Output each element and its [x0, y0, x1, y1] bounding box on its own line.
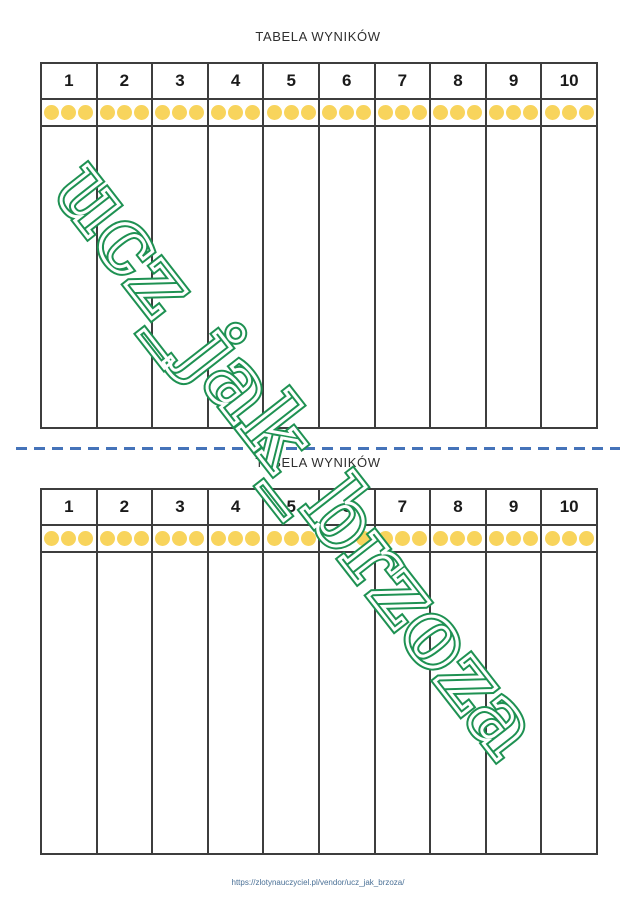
score-column-cell — [41, 552, 97, 854]
score-column-cell — [152, 552, 208, 854]
dots-group — [487, 105, 541, 120]
dots-cell — [41, 525, 97, 552]
score-column-cell — [208, 552, 264, 854]
score-column-cell — [263, 552, 319, 854]
score-dot — [562, 531, 577, 546]
dots-group — [431, 105, 485, 120]
dots-cell — [319, 525, 375, 552]
score-dot — [545, 531, 560, 546]
column-header: 10 — [541, 489, 597, 525]
score-dot — [523, 531, 538, 546]
score-column-cell — [41, 126, 97, 428]
dots-group — [431, 531, 485, 546]
dots-cell — [486, 99, 542, 126]
column-header: 2 — [97, 63, 153, 99]
score-dot — [100, 531, 115, 546]
score-dot — [211, 105, 226, 120]
column-header: 8 — [430, 489, 486, 525]
dots-group — [98, 531, 152, 546]
dots-group — [320, 531, 374, 546]
score-dot — [506, 531, 521, 546]
dots-row — [41, 525, 597, 552]
dots-group — [264, 105, 318, 120]
score-column-cell — [152, 126, 208, 428]
score-dot — [284, 105, 299, 120]
score-dot — [339, 105, 354, 120]
score-dot — [267, 531, 282, 546]
column-header: 6 — [319, 63, 375, 99]
score-dot — [134, 531, 149, 546]
dots-cell — [97, 99, 153, 126]
score-dot — [44, 531, 59, 546]
dots-cell — [319, 99, 375, 126]
column-header: 9 — [486, 63, 542, 99]
dots-cell — [208, 525, 264, 552]
column-header: 4 — [208, 63, 264, 99]
dots-group — [376, 531, 430, 546]
score-table: 12345678910 — [40, 488, 598, 855]
dots-group — [320, 105, 374, 120]
score-dot — [562, 105, 577, 120]
dots-cell — [208, 99, 264, 126]
score-column-cell — [430, 552, 486, 854]
score-column-cell — [541, 552, 597, 854]
dots-cell — [541, 525, 597, 552]
cut-line-divider — [16, 447, 620, 450]
score-dot — [78, 531, 93, 546]
dots-group — [209, 531, 263, 546]
dots-group — [153, 105, 207, 120]
score-dot — [322, 531, 337, 546]
score-dot — [117, 105, 132, 120]
score-column-cell — [97, 552, 153, 854]
dots-group — [542, 531, 596, 546]
score-dot — [134, 105, 149, 120]
column-header: 1 — [41, 63, 97, 99]
dots-cell — [263, 525, 319, 552]
dots-group — [264, 531, 318, 546]
dots-cell — [486, 525, 542, 552]
score-dot — [228, 105, 243, 120]
column-header: 5 — [263, 63, 319, 99]
score-column-cell — [319, 126, 375, 428]
column-header: 2 — [97, 489, 153, 525]
score-dot — [301, 531, 316, 546]
column-header: 1 — [41, 489, 97, 525]
score-dot — [78, 105, 93, 120]
score-dot — [412, 531, 427, 546]
score-dot — [489, 105, 504, 120]
score-dot — [301, 105, 316, 120]
dots-group — [42, 531, 96, 546]
score-dot — [467, 531, 482, 546]
score-dot — [395, 531, 410, 546]
score-dot — [117, 531, 132, 546]
dots-group — [209, 105, 263, 120]
score-entry-row — [41, 552, 597, 854]
score-dot — [155, 105, 170, 120]
footer-url-link[interactable]: https://zlotynauczyciel.pl/vendor/ucz_ja… — [0, 878, 636, 887]
score-dot — [523, 105, 538, 120]
score-column-cell — [375, 126, 431, 428]
dots-cell — [430, 99, 486, 126]
score-dot — [211, 531, 226, 546]
table-header-row: 12345678910 — [41, 63, 597, 99]
score-dot — [267, 105, 282, 120]
dots-cell — [375, 525, 431, 552]
score-dot — [172, 531, 187, 546]
score-dot — [284, 531, 299, 546]
score-dot — [100, 105, 115, 120]
dots-group — [42, 105, 96, 120]
score-dot — [61, 105, 76, 120]
column-header: 9 — [486, 489, 542, 525]
score-dot — [467, 105, 482, 120]
score-dot — [155, 531, 170, 546]
dots-cell — [152, 99, 208, 126]
score-dot — [378, 105, 393, 120]
table-header-row: 12345678910 — [41, 489, 597, 525]
dots-cell — [152, 525, 208, 552]
score-dot — [322, 105, 337, 120]
dots-group — [153, 531, 207, 546]
score-dot — [489, 531, 504, 546]
score-column-cell — [208, 126, 264, 428]
dots-group — [98, 105, 152, 120]
page-title: TABELA WYNIKÓW — [0, 455, 636, 470]
dots-cell — [263, 99, 319, 126]
score-dot — [339, 531, 354, 546]
column-header: 10 — [541, 63, 597, 99]
dots-cell — [375, 99, 431, 126]
score-column-cell — [97, 126, 153, 428]
column-header: 4 — [208, 489, 264, 525]
score-dot — [44, 105, 59, 120]
score-dot — [228, 531, 243, 546]
worksheet-page: TABELA WYNIKÓW 12345678910 TABELA WYNIKÓ… — [0, 0, 636, 900]
score-column-cell — [486, 126, 542, 428]
score-dot — [412, 105, 427, 120]
score-dot — [433, 531, 448, 546]
score-column-cell — [375, 552, 431, 854]
score-dot — [378, 531, 393, 546]
score-dot — [356, 105, 371, 120]
score-dot — [395, 105, 410, 120]
score-column-cell — [541, 126, 597, 428]
score-dot — [356, 531, 371, 546]
column-header: 3 — [152, 489, 208, 525]
dots-cell — [541, 99, 597, 126]
column-header: 8 — [430, 63, 486, 99]
dots-cell — [430, 525, 486, 552]
score-dot — [172, 105, 187, 120]
score-column-cell — [486, 552, 542, 854]
column-header: 5 — [263, 489, 319, 525]
score-dot — [189, 105, 204, 120]
column-header: 7 — [375, 489, 431, 525]
column-header: 3 — [152, 63, 208, 99]
score-dot — [189, 531, 204, 546]
score-dot — [506, 105, 521, 120]
score-dot — [450, 531, 465, 546]
dots-row — [41, 99, 597, 126]
score-table: 12345678910 — [40, 62, 598, 429]
dots-group — [542, 105, 596, 120]
score-dot — [245, 531, 260, 546]
dots-cell — [97, 525, 153, 552]
column-header: 7 — [375, 63, 431, 99]
score-dot — [450, 105, 465, 120]
column-header: 6 — [319, 489, 375, 525]
score-column-cell — [319, 552, 375, 854]
score-dot — [245, 105, 260, 120]
score-dot — [579, 105, 594, 120]
dots-group — [376, 105, 430, 120]
score-column-cell — [430, 126, 486, 428]
dots-cell — [41, 99, 97, 126]
score-dot — [61, 531, 76, 546]
score-dot — [545, 105, 560, 120]
score-dot — [579, 531, 594, 546]
dots-group — [487, 531, 541, 546]
page-title: TABELA WYNIKÓW — [0, 29, 636, 44]
score-dot — [433, 105, 448, 120]
score-column-cell — [263, 126, 319, 428]
score-entry-row — [41, 126, 597, 428]
